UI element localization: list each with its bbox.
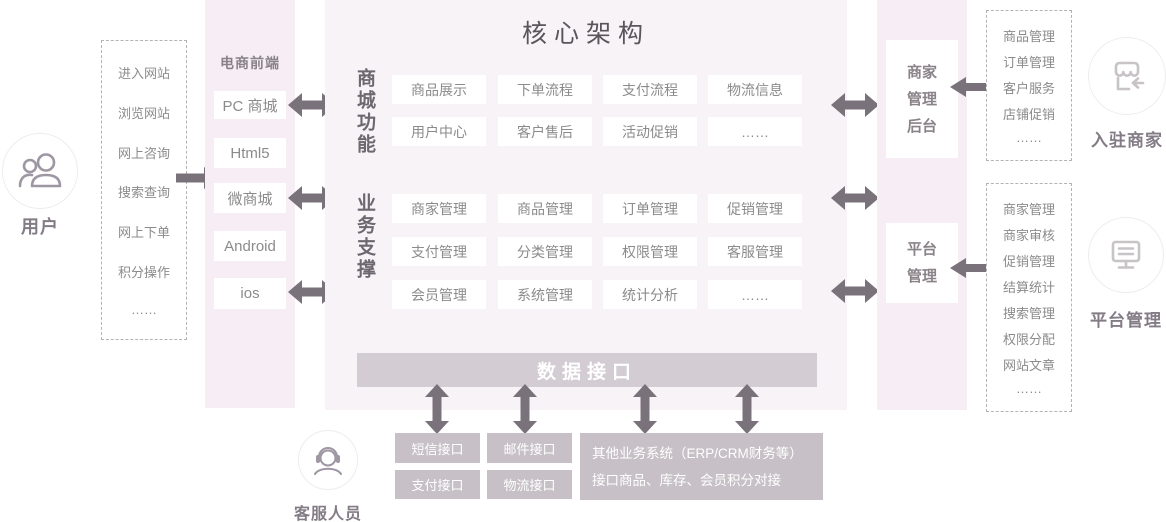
frontend-column: 电商前端 PC 商城 Html5 微商城 Android ios (205, 0, 295, 408)
merchant-function: 订单管理 (1003, 52, 1055, 71)
platform-function: 网站文章 (1003, 355, 1055, 374)
other-systems-box: 其他业务系统（ERP/CRM财务等） 接口商品、库存、会员积分对接 (580, 433, 823, 500)
frontend-item-html5: Html5 (214, 138, 286, 168)
arrow-core-right-1 (831, 92, 879, 118)
user-avatar (2, 133, 78, 209)
mall-box: 用户中心 (392, 117, 486, 146)
user-actions-panel: 进入网站 浏览网站 网上咨询 搜索查询 网上下单 积分操作 …… (101, 40, 187, 340)
platform-functions-panel: 商家管理 商家审核 促销管理 结算统计 搜索管理 权限分配 网站文章 …… (986, 183, 1072, 412)
arrow-bar-mail (512, 384, 538, 434)
mall-box: 活动促销 (603, 117, 697, 146)
service-avatar (298, 430, 358, 490)
platform-box-line: 管理 (907, 263, 937, 290)
merchant-backend-line: 后台 (907, 113, 937, 140)
support-box: 商品管理 (498, 194, 592, 223)
platform-box-line: 平台 (907, 236, 937, 263)
frontend-item-weshop: 微商城 (214, 183, 286, 213)
user-label: 用户 (2, 213, 78, 239)
user-action: 网上咨询 (118, 143, 170, 162)
other-systems-line2: 接口商品、库存、会员积分对接 (592, 467, 823, 494)
mall-box: 物流信息 (708, 75, 802, 104)
core-panel: 核心架构 商城功能 商品展示 下单流程 支付流程 物流信息 用户中心 客户售后 … (325, 0, 847, 410)
support-box: …… (708, 280, 802, 309)
platform-function: …… (1016, 381, 1042, 396)
users-icon (17, 152, 63, 190)
support-box: 客服管理 (708, 237, 802, 266)
support-box: 订单管理 (603, 194, 697, 223)
mall-section-label: 商城功能 (351, 68, 378, 156)
platform-function: 搜索管理 (1003, 303, 1055, 322)
support-box: 分类管理 (498, 237, 592, 266)
support-box: 统计分析 (603, 280, 697, 309)
merchant-function: 店铺促销 (1003, 104, 1055, 123)
admin-column: 商家 管理 后台 平台 管理 (877, 0, 967, 410)
merchant-backend-line: 商家 (907, 59, 937, 86)
storefront-icon (1106, 55, 1148, 97)
mall-box: 商品展示 (392, 75, 486, 104)
arrow-bar-sms (424, 384, 450, 434)
interface-box-mail: 邮件接口 (487, 433, 572, 463)
core-title: 核心架构 (325, 14, 847, 50)
platform-label: 平台管理 (1087, 306, 1165, 331)
support-box: 支付管理 (392, 237, 486, 266)
arrow-bar-other-1 (632, 384, 658, 434)
mall-box: 下单流程 (498, 75, 592, 104)
merchant-functions-panel: 商品管理 订单管理 客户服务 店铺促销 …… (986, 10, 1072, 161)
frontend-item-pc: PC 商城 (214, 91, 286, 119)
platform-function: 商家审核 (1003, 225, 1055, 244)
platform-management-box: 平台 管理 (886, 223, 958, 303)
user-action: 网上下单 (118, 222, 170, 241)
interface-box-pay: 支付接口 (395, 470, 480, 499)
mall-box: 支付流程 (603, 75, 697, 104)
user-action: 搜索查询 (118, 182, 170, 201)
merchant-function: 商品管理 (1003, 26, 1055, 45)
merchant-function: …… (1016, 130, 1042, 145)
platform-avatar (1088, 217, 1164, 293)
architecture-diagram: 用户 进入网站 浏览网站 网上咨询 搜索查询 网上下单 积分操作 …… 电商前端… (0, 0, 1166, 522)
interface-box-logistics: 物流接口 (487, 470, 572, 499)
platform-function: 权限分配 (1003, 329, 1055, 348)
support-box: 促销管理 (708, 194, 802, 223)
merchant-backend-box: 商家 管理 后台 (886, 40, 958, 158)
data-interface-bar: 数据接口 (357, 353, 817, 387)
headset-icon (310, 443, 346, 477)
user-action: 进入网站 (118, 63, 170, 82)
merchant-backend-line: 管理 (907, 86, 937, 113)
mall-box: …… (708, 117, 802, 146)
support-box: 商家管理 (392, 194, 486, 223)
support-box: 权限管理 (603, 237, 697, 266)
support-box: 系统管理 (498, 280, 592, 309)
frontend-header: 电商前端 (205, 53, 295, 73)
frontend-item-ios: ios (214, 278, 286, 309)
merchant-avatar (1088, 37, 1166, 115)
arrow-bar-other-2 (734, 384, 760, 434)
user-action: 积分操作 (118, 262, 170, 281)
frontend-item-android: Android (214, 231, 286, 261)
other-systems-line1: 其他业务系统（ERP/CRM财务等） (592, 440, 823, 467)
arrow-core-right-3 (831, 278, 879, 304)
interface-box-sms: 短信接口 (395, 433, 480, 463)
platform-function: 结算统计 (1003, 277, 1055, 296)
merchant-label: 入驻商家 (1088, 126, 1166, 151)
mall-box: 客户售后 (498, 117, 592, 146)
service-label: 客服人员 (288, 500, 368, 522)
support-section-label: 业务支撑 (351, 193, 378, 281)
user-action: …… (131, 302, 157, 317)
arrow-core-right-2 (831, 185, 879, 211)
monitor-icon (1105, 234, 1147, 276)
platform-function: 商家管理 (1003, 199, 1055, 218)
support-box: 会员管理 (392, 280, 486, 309)
platform-function: 促销管理 (1003, 251, 1055, 270)
merchant-function: 客户服务 (1003, 78, 1055, 97)
user-action: 浏览网站 (118, 103, 170, 122)
